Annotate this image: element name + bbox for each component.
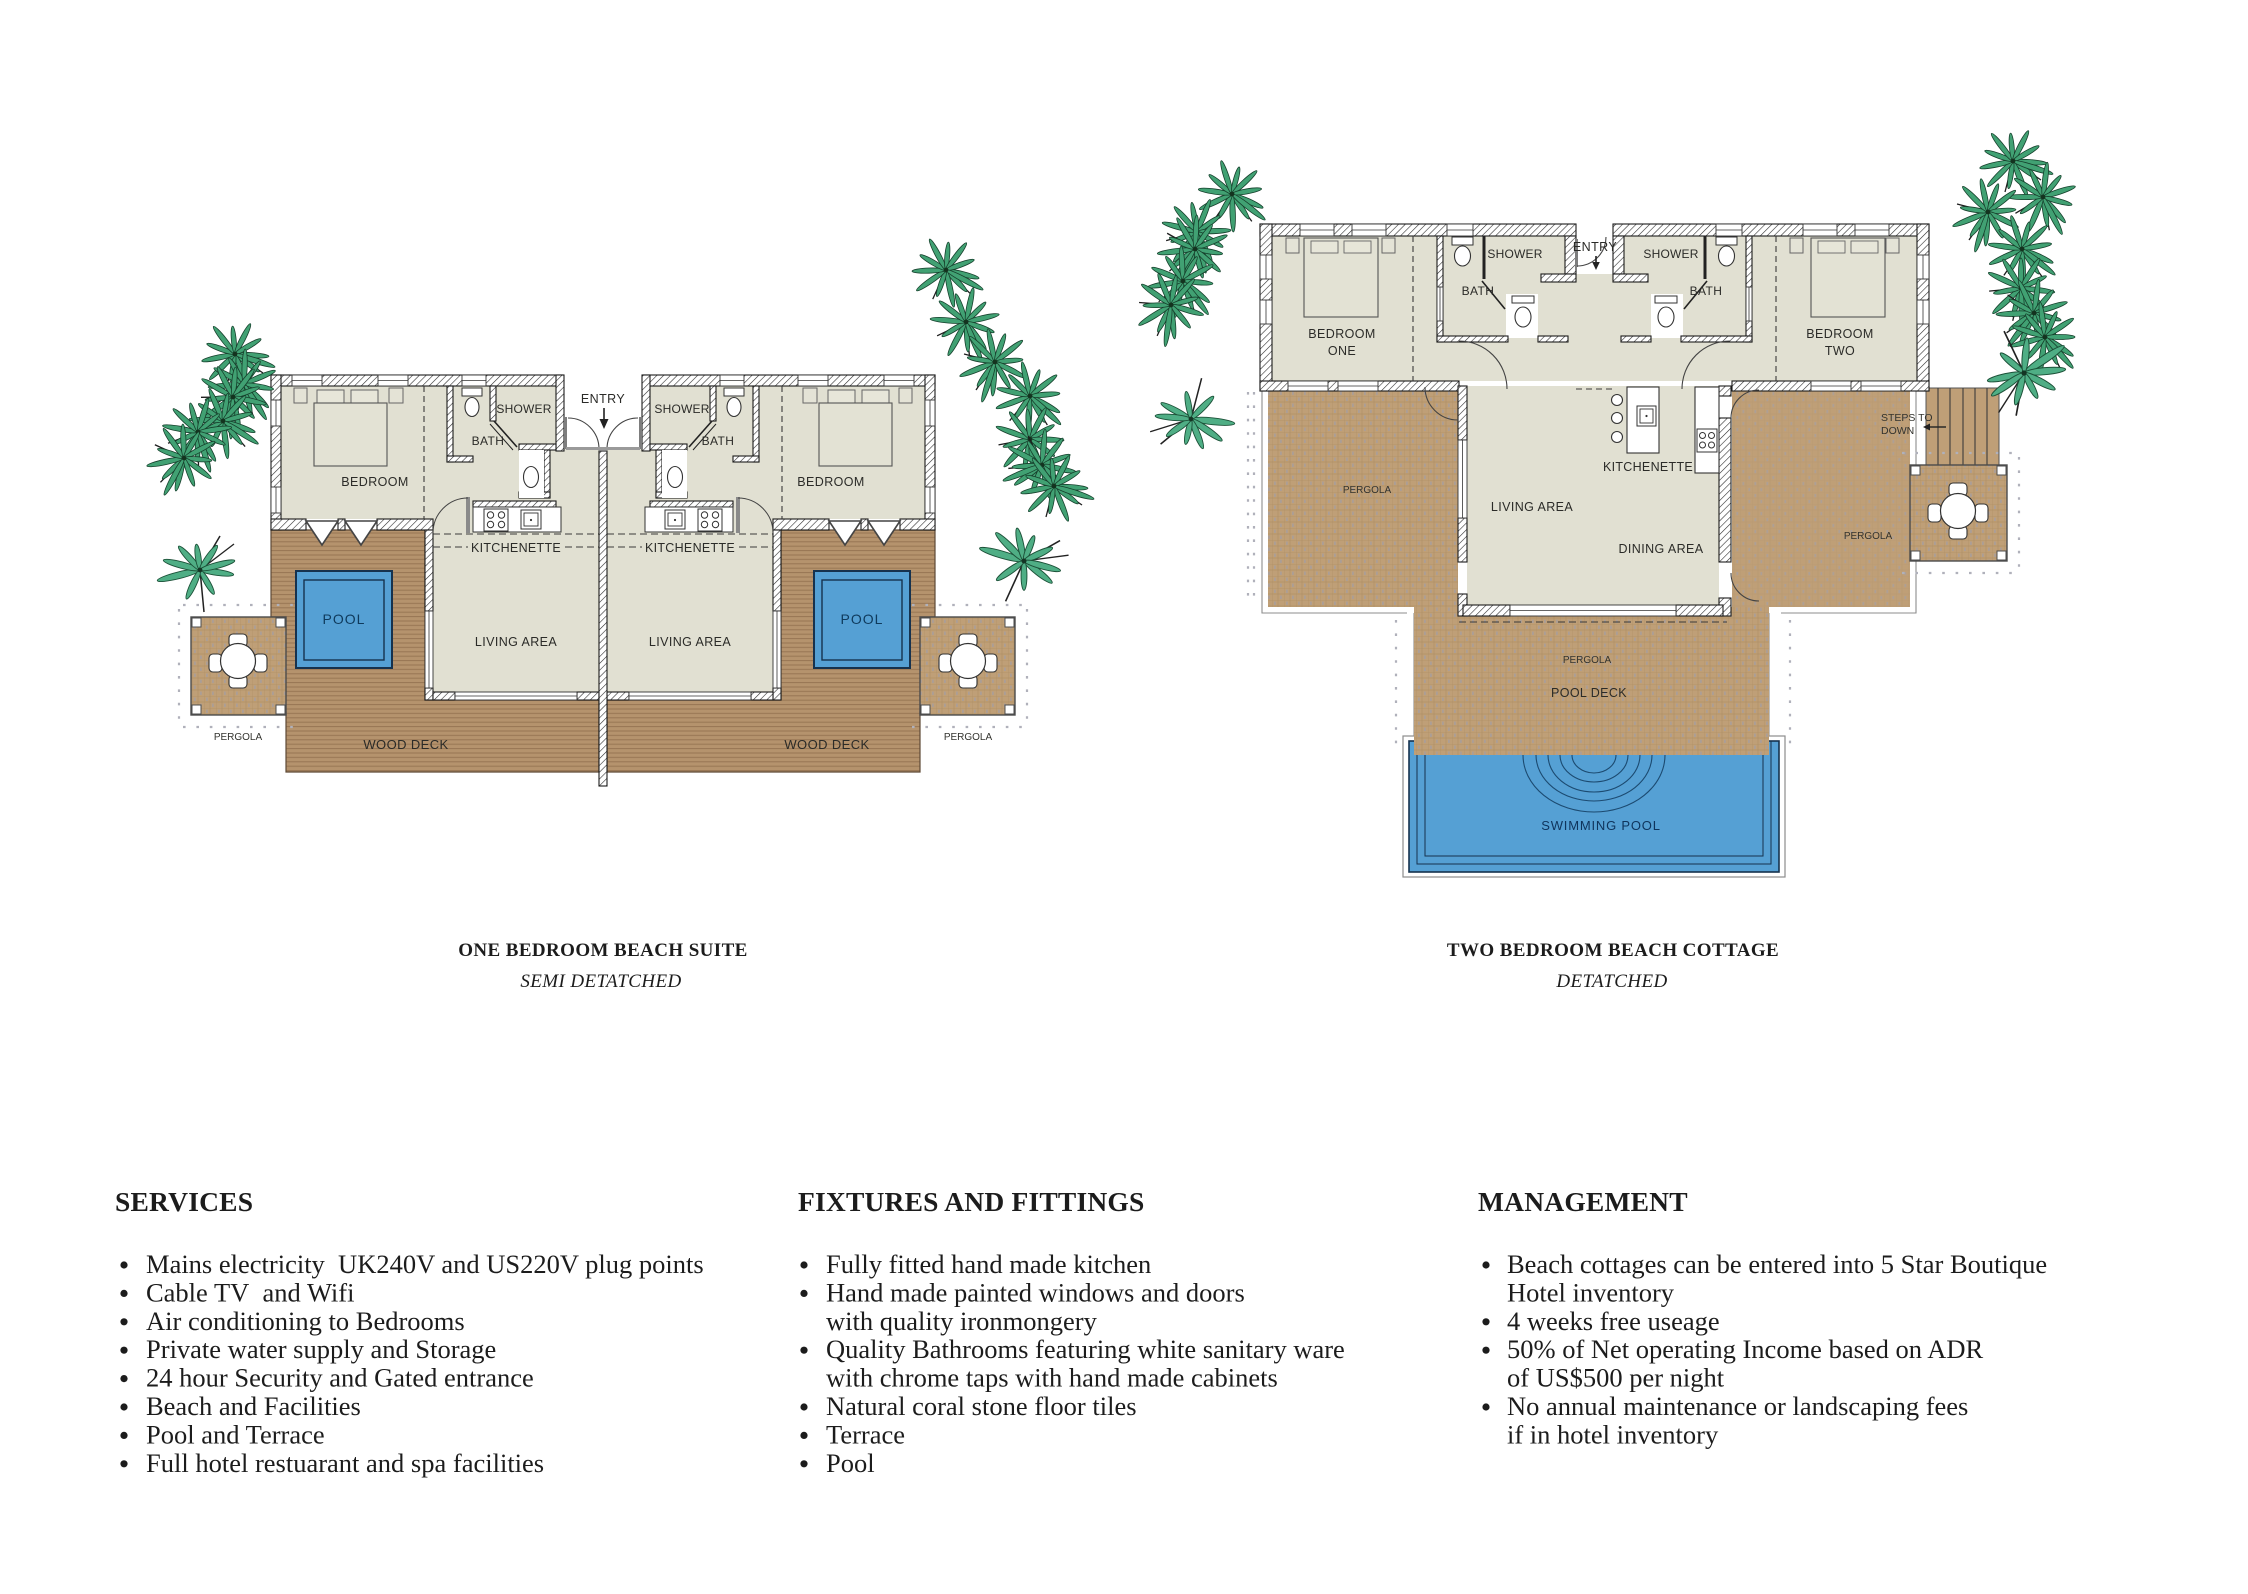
svg-text:KITCHENETTE: KITCHENETTE	[1603, 460, 1693, 474]
svg-text:MANAGEMENT: MANAGEMENT	[1478, 1186, 1688, 1217]
svg-text:Natural coral stone floor tile: Natural coral stone floor tiles	[826, 1391, 1137, 1421]
svg-text:No annual maintenance or lands: No annual maintenance or landscaping fee…	[1507, 1391, 1968, 1421]
svg-text:Pool and Terrace: Pool and Terrace	[146, 1419, 325, 1449]
svg-text:PERGOLA: PERGOLA	[944, 732, 993, 743]
svg-text:KITCHENETTE: KITCHENETTE	[471, 541, 561, 555]
svg-text:if in hotel inventory: if in hotel inventory	[1507, 1419, 1719, 1449]
svg-text:POOL: POOL	[841, 611, 884, 627]
svg-text:Fully fitted hand made kitchen: Fully fitted hand made kitchen	[826, 1249, 1151, 1279]
svg-text:Cable TV and Wifi: Cable TV and Wifi	[146, 1277, 354, 1307]
svg-text:TWO BEDROOM BEACH COTTAGE: TWO BEDROOM BEACH COTTAGE	[1447, 940, 1779, 961]
svg-text:of US$500 per night: of US$500 per night	[1507, 1363, 1725, 1393]
svg-text:SHOWER: SHOWER	[654, 402, 709, 416]
svg-text:PERGOLA: PERGOLA	[1844, 531, 1893, 542]
svg-text:Hotel inventory: Hotel inventory	[1507, 1277, 1675, 1307]
svg-text:Beach and Facilities: Beach and Facilities	[146, 1391, 361, 1421]
svg-text:BATH: BATH	[1690, 284, 1723, 298]
svg-text:PERGOLA: PERGOLA	[1563, 655, 1612, 666]
svg-text:DINING AREA: DINING AREA	[1619, 542, 1704, 556]
svg-text:4 weeks free useage: 4 weeks free useage	[1507, 1306, 1720, 1336]
svg-text:BATH: BATH	[1462, 284, 1495, 298]
svg-text:ONE BEDROOM BEACH SUITE: ONE BEDROOM BEACH SUITE	[458, 940, 748, 961]
svg-text:STEPS TO: STEPS TO	[1881, 412, 1933, 424]
svg-text:ENTRY: ENTRY	[1573, 240, 1617, 254]
svg-text:PERGOLA: PERGOLA	[1343, 485, 1392, 496]
svg-text:Pool: Pool	[826, 1448, 875, 1478]
svg-text:BEDROOM: BEDROOM	[1806, 327, 1873, 341]
svg-text:KITCHENETTE: KITCHENETTE	[645, 541, 735, 555]
svg-text:SHOWER: SHOWER	[1643, 247, 1698, 261]
svg-text:LIVING AREA: LIVING AREA	[1491, 500, 1573, 514]
svg-text:BATH: BATH	[472, 434, 505, 448]
svg-text:SWIMMING POOL: SWIMMING POOL	[1541, 818, 1660, 833]
svg-text:BEDROOM: BEDROOM	[1308, 327, 1375, 341]
svg-text:ONE: ONE	[1328, 344, 1356, 358]
svg-text:with quality ironmongery: with quality ironmongery	[826, 1306, 1098, 1336]
svg-text:POOL DECK: POOL DECK	[1551, 686, 1627, 700]
svg-text:SEMI DETATCHED: SEMI DETATCHED	[520, 971, 681, 992]
svg-text:Air conditioning to Bedrooms: Air conditioning to Bedrooms	[146, 1306, 465, 1336]
svg-text:ENTRY: ENTRY	[581, 392, 625, 406]
svg-text:FIXTURES AND FITTINGS: FIXTURES AND FITTINGS	[798, 1186, 1145, 1217]
svg-text:WOOD DECK: WOOD DECK	[363, 737, 448, 752]
svg-text:Hand made painted windows and: Hand made painted windows and doors	[826, 1277, 1245, 1307]
svg-text:LIVING AREA: LIVING AREA	[649, 635, 731, 649]
svg-text:POOL: POOL	[323, 611, 366, 627]
svg-text:SERVICES: SERVICES	[115, 1186, 253, 1217]
svg-text:50% of Net operating Income ba: 50% of Net operating Income based on ADR	[1507, 1334, 1983, 1364]
svg-text:LIVING AREA: LIVING AREA	[475, 635, 557, 649]
svg-text:SHOWER: SHOWER	[1487, 247, 1542, 261]
svg-text:Beach cottages can be entered: Beach cottages can be entered into 5 Sta…	[1507, 1249, 2047, 1279]
svg-text:Private water supply and Stora: Private water supply and Storage	[146, 1334, 496, 1364]
svg-text:TWO: TWO	[1825, 344, 1855, 358]
svg-text:PERGOLA: PERGOLA	[214, 732, 263, 743]
svg-text:DETATCHED: DETATCHED	[1555, 971, 1667, 992]
svg-text:24 hour Security and Gated ent: 24 hour Security and Gated entrance	[146, 1363, 534, 1393]
svg-text:Quality Bathrooms featuring wh: Quality Bathrooms featuring white sanita…	[826, 1334, 1345, 1364]
svg-text:DOWN: DOWN	[1881, 425, 1914, 437]
svg-text:BEDROOM: BEDROOM	[341, 475, 408, 489]
svg-text:BEDROOM: BEDROOM	[797, 475, 864, 489]
svg-text:WOOD DECK: WOOD DECK	[784, 737, 869, 752]
svg-text:Full hotel restuarant and spa: Full hotel restuarant and spa facilities	[146, 1448, 544, 1478]
svg-text:BATH: BATH	[702, 434, 735, 448]
svg-text:SHOWER: SHOWER	[496, 402, 551, 416]
svg-text:Terrace: Terrace	[826, 1419, 905, 1449]
svg-text:Mains electricity UK240V and: Mains electricity UK240V and US220V plug…	[146, 1249, 704, 1279]
svg-text:with chrome taps with hand mad: with chrome taps with hand made cabinets	[826, 1363, 1278, 1393]
